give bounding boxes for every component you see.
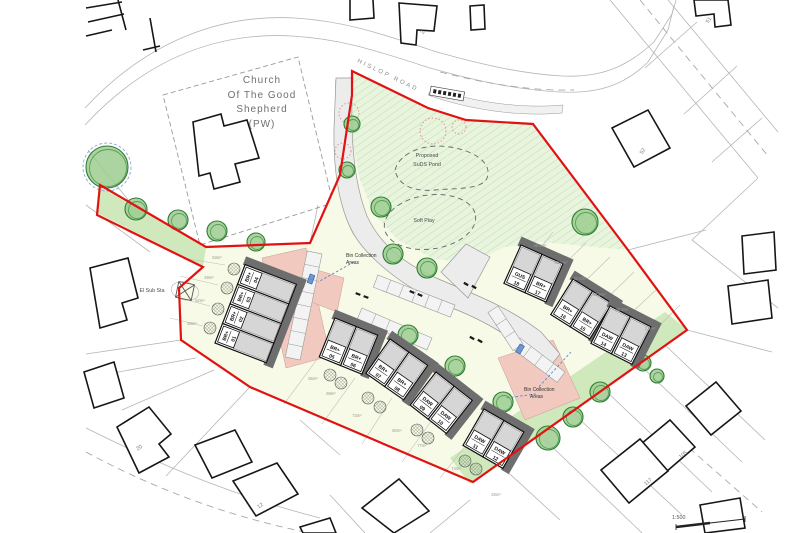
garden-area-label: 53m²: [212, 255, 222, 260]
tree-icon: [572, 209, 598, 235]
context-house-number: 51: [705, 16, 713, 24]
el-sub-sta-label: El Sub Sta: [139, 288, 164, 294]
garden-area-label: 2.9m²: [645, 326, 656, 331]
shrub-icon: [362, 392, 374, 404]
garden-area-label: 60.5m²: [554, 260, 568, 265]
tree-icon: [207, 221, 227, 241]
shrub-icon: [459, 455, 471, 467]
verge-northwest-arm: [97, 187, 206, 266]
garden-area-label: 49m²: [204, 275, 214, 280]
garden-area-label: 74m²: [451, 466, 461, 471]
shrub-icon: [204, 322, 216, 334]
bin-area-label2-line2: Areas: [530, 394, 544, 400]
garden-area-label: 77m²: [417, 443, 427, 448]
suds-pond-label-line2: SuDS Pond: [413, 162, 441, 168]
garden-area-label: 95.9m²: [533, 243, 547, 248]
shrub-icon: [411, 424, 423, 436]
shrub-icon: [374, 401, 386, 413]
church-label-line2: Of The Good: [228, 90, 297, 101]
tree-icon: [83, 143, 131, 191]
garden-area-label: 58m²: [187, 321, 197, 326]
garden-area-label: 62.5m²: [573, 276, 587, 281]
tree-icon: [417, 258, 437, 278]
bin-area-label1-line2: Areas: [346, 260, 360, 266]
garden-area-label: 48.9m²: [615, 307, 629, 312]
suds-pond-label-line1: Proposed: [416, 153, 439, 159]
garden-area-label: 69m²: [326, 391, 336, 396]
bin-area-label1-line1: Bin Collection: [346, 253, 377, 259]
church-label-line4: (PW): [249, 119, 276, 130]
church-label-line3: Shepherd: [236, 104, 287, 115]
tree-icon: [650, 369, 664, 383]
garden-area-label: 28m²: [491, 492, 501, 497]
garden-area-label: 73m²: [352, 413, 362, 418]
garden-area-label: 80m²: [392, 428, 402, 433]
garden-area-label: 52m²: [195, 298, 205, 303]
tree-icon: [383, 244, 403, 264]
garden-area-label: 55m²: [308, 376, 318, 381]
shrub-icon: [221, 282, 233, 294]
el-sub-sta-building: [90, 258, 138, 328]
soft-play-label: Soft Play: [413, 218, 435, 224]
site-plan-drawing: BR+01BR+02BR+03BR+04BR+05BR+06BR+07BR+08…: [0, 0, 800, 533]
road-junction-marks: [86, 0, 160, 52]
shrub-icon: [470, 463, 482, 475]
church-label-line1: Church: [243, 75, 281, 86]
shrub-icon: [335, 377, 347, 389]
shrub-icon: [212, 303, 224, 315]
bin-area-label2-line1: Bin Collection: [524, 387, 555, 393]
tree-icon: [247, 233, 265, 251]
garden-area-label: 63.9m²: [592, 292, 606, 297]
scale-label: 1:500: [672, 515, 686, 521]
shrub-icon: [324, 369, 336, 381]
shrub-icon: [228, 263, 240, 275]
site-plan-page: BR+01BR+02BR+03BR+04BR+05BR+06BR+07BR+08…: [0, 0, 800, 533]
tree-icon: [371, 197, 391, 217]
